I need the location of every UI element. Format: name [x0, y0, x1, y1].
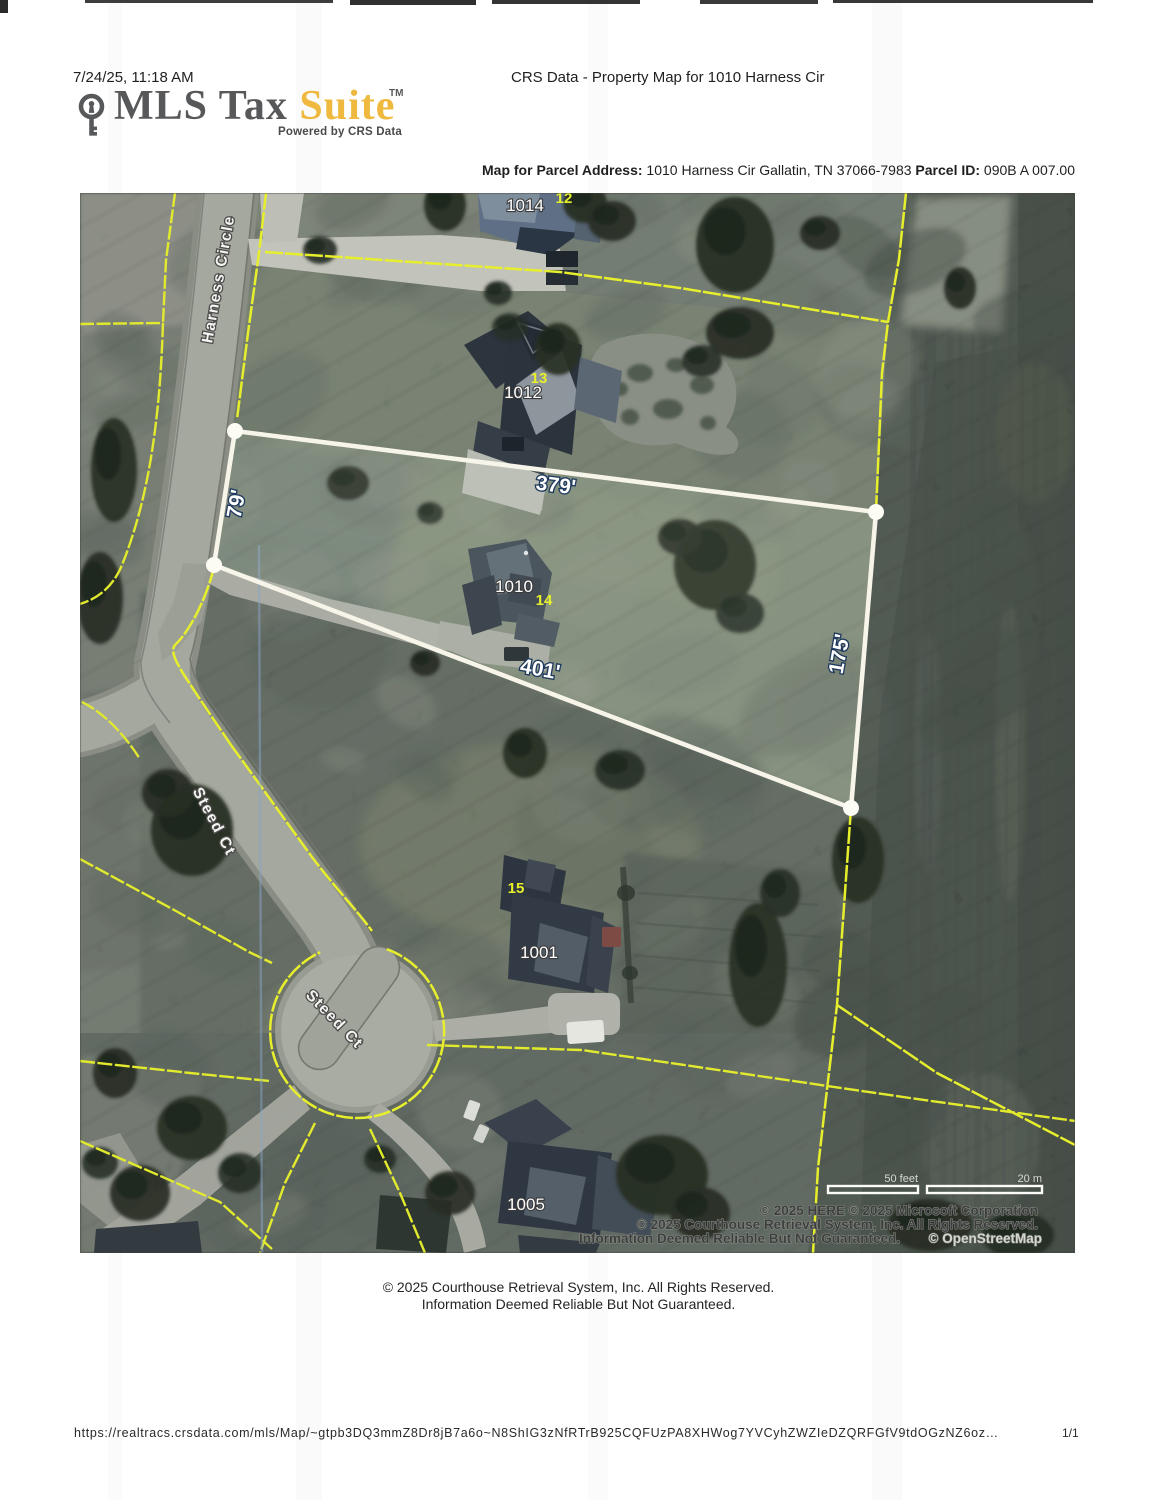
svg-text:50 feet: 50 feet [884, 1173, 918, 1185]
svg-text:1010: 1010 [495, 577, 533, 596]
svg-text:© 2025 HERE © 2025 Microsoft C: © 2025 HERE © 2025 Microsoft Corporation [760, 1203, 1038, 1218]
svg-text:14: 14 [536, 592, 553, 609]
svg-text:13: 13 [531, 370, 548, 387]
svg-text:1001: 1001 [520, 943, 558, 962]
svg-text:15: 15 [508, 880, 525, 897]
svg-text:1014: 1014 [506, 196, 544, 215]
svg-text:Information Deemed Reliable Bu: Information Deemed Reliable But Not Guar… [579, 1231, 900, 1246]
svg-text:12: 12 [556, 193, 573, 207]
svg-text:© OpenStreetMap: © OpenStreetMap [929, 1231, 1042, 1246]
svg-text:79': 79' [223, 488, 251, 520]
svg-text:379': 379' [535, 472, 578, 500]
svg-text:© 2025 Courthouse Retrieval Sy: © 2025 Courthouse Retrieval System, Inc.… [637, 1217, 1038, 1232]
svg-text:20 m: 20 m [1018, 1173, 1042, 1185]
svg-text:1005: 1005 [507, 1195, 545, 1214]
